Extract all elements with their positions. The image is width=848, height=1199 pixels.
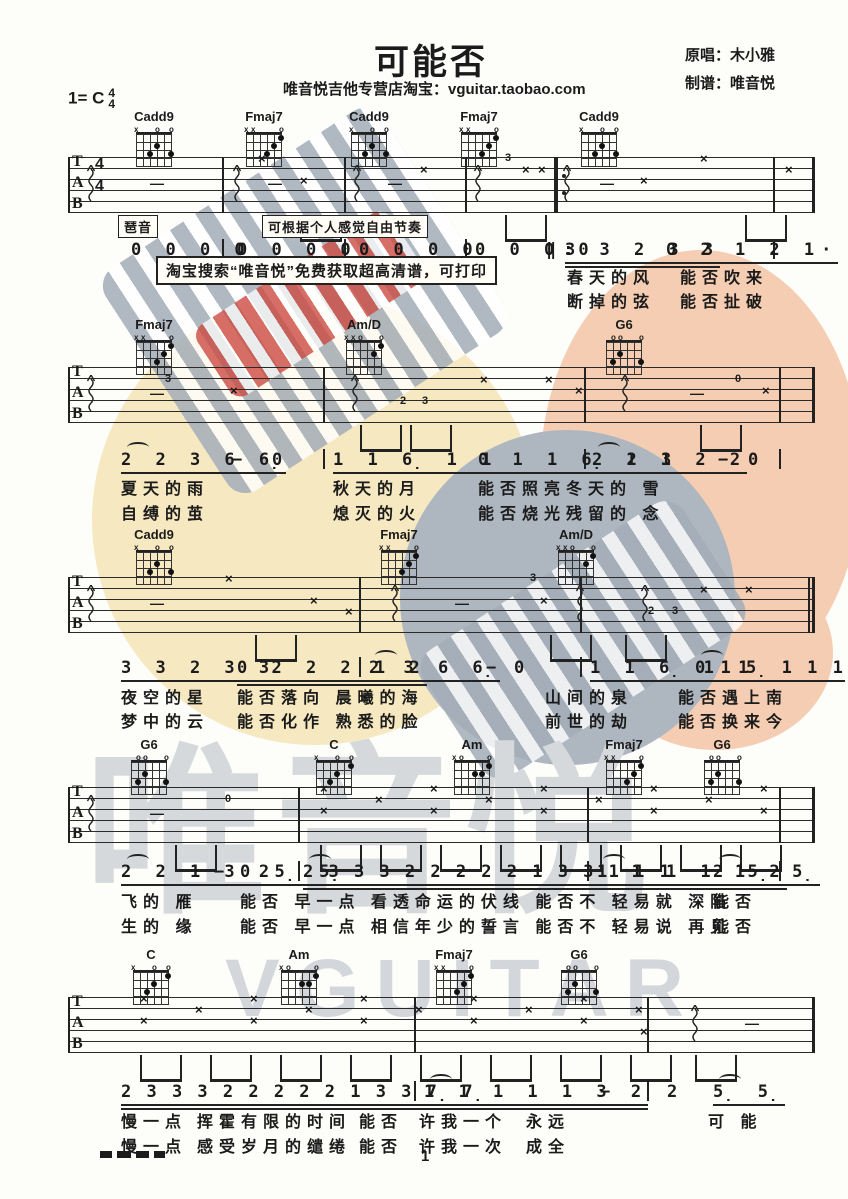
staff-barline (779, 367, 781, 423)
arpeggio-squiggle (350, 375, 360, 413)
staff-barline (808, 577, 810, 633)
strum-x-mark: × (320, 804, 328, 817)
chord-string-marker: o (169, 544, 174, 552)
chord-string-marker: x (579, 126, 583, 134)
chord-finger-dot (486, 143, 492, 149)
staff-time-sig-bottom: 4 (95, 178, 104, 196)
strum-x-mark: × (545, 373, 553, 386)
chord-diagram: G6ooo (125, 738, 173, 795)
chord-finger-dot (369, 143, 375, 149)
key-text: 1= C (68, 88, 104, 107)
chord-grid: xoo (581, 132, 617, 167)
strum-x-mark: × (195, 1003, 203, 1016)
chord-string-marker: o (414, 544, 419, 552)
lyric-segment-line1: 秋天的月 (333, 475, 421, 499)
chord-finger-dot (168, 151, 174, 157)
chord-finger-dot (624, 779, 630, 785)
chord-string-marker: x (563, 544, 567, 552)
chord-finger-dot (708, 779, 714, 785)
lyric-segment-line2: 能否 (713, 913, 757, 937)
rhythm-beam (550, 635, 592, 662)
slur-arc (701, 650, 723, 661)
strum-x-mark: × (415, 1003, 423, 1016)
staff-barline (465, 157, 467, 213)
fret-number: 3 (530, 573, 536, 584)
strum-x-mark: × (525, 1003, 533, 1016)
fret-number: 3 (672, 606, 678, 617)
chord-finger-dot (599, 143, 605, 149)
chord-finger-dot (313, 973, 319, 979)
chord-diagram: Fmaj7xxo (130, 318, 178, 375)
chord-diagram: Fmaj7xxo (600, 738, 648, 795)
chord-grid: ooo (561, 970, 597, 1005)
chord-diagram: G6ooo (698, 738, 746, 795)
chord-string-marker: x (279, 964, 283, 972)
tab-clef-letter: B (72, 195, 83, 213)
fret-number: 2 (400, 396, 406, 407)
chord-finger-dot (383, 151, 389, 157)
staff-barline (298, 787, 300, 843)
arpeggio-squiggle (390, 585, 400, 623)
chord-string-marker: o (600, 126, 605, 134)
chord-grid: xoo (136, 550, 172, 585)
chord-finger-dot (486, 763, 492, 769)
arpeggio-label: 琶音 (118, 215, 158, 238)
chord-string-marker: o (566, 964, 571, 972)
chord-finger-dot (151, 981, 157, 987)
sheet-music-page: 唯音悦 VGUITAR 可能否 原唱：木小雅 制谱：唯音悦 唯音悦吉他专营店淘宝… (0, 0, 848, 1199)
chord-finger-dot (154, 359, 160, 365)
strum-x-mark: × (345, 605, 353, 618)
chord-string-marker: o (155, 544, 160, 552)
strum-x-mark: × (375, 793, 383, 806)
chord-string-marker: x (314, 754, 318, 762)
lyric-segment-line2: 熄灭的火 (333, 500, 421, 524)
chord-string-marker: o (164, 754, 169, 762)
jianpu-group: 5̣ 5̣ (713, 1082, 785, 1106)
strum-x-mark: × (580, 1014, 588, 1027)
artifact-mark (117, 1151, 131, 1158)
strum-x-mark: × (310, 594, 318, 607)
jianpu-group: 1 1 6̣ 1 1 (333, 450, 498, 474)
chord-finger-dot (572, 981, 578, 987)
chord-string-marker: x (349, 126, 353, 134)
lyric-segment-line1: 能否遇上南 (678, 684, 788, 708)
staff-barline (587, 787, 589, 843)
chord-finger-dot (168, 569, 174, 575)
free-rhythm-label: 可根据个人感觉自由节奏 (262, 215, 428, 238)
strum-x-mark: × (760, 782, 768, 795)
lyric-segment-line2: 许我一次 (419, 1133, 507, 1157)
strum-x-mark: × (480, 373, 488, 386)
chord-name: Am (448, 738, 496, 752)
strum-x-mark: × (640, 1025, 648, 1038)
strum-x-mark: × (420, 163, 428, 176)
chord-string-marker: o (358, 334, 363, 342)
chord-string-marker: x (379, 544, 383, 552)
chord-string-marker: x (244, 126, 248, 134)
chord-finger-dot (278, 135, 284, 141)
chord-string-marker: o (639, 334, 644, 342)
lyric-segment-line2: 能否换来今 (678, 708, 788, 732)
chord-diagram: Fmaj7xxo (375, 528, 423, 585)
chord-name: C (127, 948, 175, 962)
chord-string-marker: o (494, 126, 499, 134)
chord-string-marker: o (136, 754, 141, 762)
chord-name: Am/D (552, 528, 600, 542)
chord-string-marker: x (556, 544, 560, 552)
chord-finger-dot (468, 973, 474, 979)
tab-clef-letter: T (72, 783, 83, 801)
chord-grid: xxo (136, 340, 172, 375)
chord-grid: xoo (281, 970, 317, 1005)
lyric-segment-line1: 许我一个 (419, 1108, 507, 1132)
chord-name: Fmaj7 (430, 948, 478, 962)
arpeggio-squiggle (575, 585, 585, 623)
chord-finger-dot (613, 151, 619, 157)
chord-finger-dot (593, 989, 599, 995)
lyric-segment-line1: 永远 (526, 1108, 570, 1132)
chord-string-marker: x (434, 964, 438, 972)
chord-string-marker: x (459, 126, 463, 134)
lyric-segment-line1: 能否 (713, 888, 757, 912)
chord-string-marker: x (134, 126, 138, 134)
arpeggio-squiggle (232, 165, 242, 203)
chord-name: Cadd9 (130, 528, 178, 542)
strum-x-mark: × (430, 782, 438, 795)
strum-x-mark: × (650, 804, 658, 817)
tab-clef-letter: B (72, 615, 83, 633)
artifact-mark (136, 1151, 149, 1158)
arpeggio-squiggle (473, 165, 483, 203)
slur-arc (598, 442, 620, 453)
chord-string-marker: x (351, 334, 355, 342)
lyric-segment-line2: 能否 (359, 1133, 403, 1157)
fret-number: 0 (225, 794, 231, 805)
lyric-segment-line2: 能否扯破 (680, 288, 768, 312)
staff-end-barline (812, 157, 815, 213)
chord-string-marker: x (452, 754, 456, 762)
chord-string-marker: o (169, 126, 174, 134)
staff-barline (323, 367, 325, 423)
lyric-segment-line1: 夜空的星 (121, 684, 209, 708)
lyric-segment-line2: 自缚的茧 (121, 500, 209, 524)
lyric-segment-line2: 断掉的弦 (567, 288, 655, 312)
staff-barline (68, 157, 70, 213)
staff-end-barline (812, 997, 815, 1053)
jianpu-group: − (600, 1082, 617, 1104)
chord-grid: ooo (606, 340, 642, 375)
chord-string-marker: o (379, 334, 384, 342)
strum-x-mark: × (700, 152, 708, 165)
rhythm-beam (745, 215, 787, 242)
arpeggio-squiggle (620, 375, 630, 413)
strum-x-mark: × (595, 793, 603, 806)
chord-string-marker: x (251, 126, 255, 134)
chord-string-marker: o (459, 754, 464, 762)
strum-x-mark: × (140, 1014, 148, 1027)
jianpu-group: 0 (272, 450, 289, 472)
lyric-segment-line1: 挥霍有限的时间 (197, 1108, 351, 1132)
chord-name: Fmaj7 (600, 738, 648, 752)
chord-diagram: Amxoo (448, 738, 496, 795)
chord-string-marker: o (591, 544, 596, 552)
lyric-segment-line1: 能否吹来 (680, 264, 768, 288)
chord-finger-dot (493, 135, 499, 141)
chord-name: G6 (555, 948, 603, 962)
chord-diagram: G6ooo (555, 948, 603, 1005)
chord-name: Fmaj7 (455, 110, 503, 124)
chord-finger-dot (406, 561, 412, 567)
chord-string-marker: o (487, 754, 492, 762)
chord-finger-dot (154, 561, 160, 567)
chord-grid: xxoo (558, 550, 594, 585)
clipped-print-artifact (100, 1151, 170, 1169)
rest-dash: — (455, 596, 469, 610)
slur-arc (127, 854, 149, 865)
tab-clef-letter: T (72, 363, 83, 381)
chord-finger-dot (135, 779, 141, 785)
strum-x-mark: × (430, 804, 438, 817)
arpeggio-squiggle (86, 165, 96, 203)
chord-string-marker: o (143, 754, 148, 762)
credit-original-singer: 原唱：木小雅 (685, 44, 775, 65)
tab-clef-letter: T (72, 153, 83, 171)
credit-arranger: 制谱：唯音悦 (685, 72, 775, 93)
fret-number: 0 (735, 374, 741, 385)
jianpu-group: 2 2 3 6 6̣ (121, 450, 286, 474)
chord-string-marker: o (370, 126, 375, 134)
chord-grid: xoo (136, 132, 172, 167)
arpeggio-squiggle (86, 585, 96, 623)
chord-diagram: Cadd9xoo (130, 110, 178, 167)
jianpu-group: 0 1 5̣ 1 1 1 (695, 658, 845, 682)
chord-finger-dot (583, 561, 589, 567)
number-row-barline (779, 449, 781, 469)
tab-clef-letter: A (72, 804, 84, 822)
chord-string-marker: o (155, 126, 160, 134)
slur-arc (719, 854, 741, 865)
tab-clef-letter: A (72, 174, 84, 192)
chord-diagram: Am/Dxxoo (340, 318, 388, 375)
tab-clef-letter: B (72, 825, 83, 843)
strum-x-mark: × (540, 594, 548, 607)
chord-string-marker: x (611, 754, 615, 762)
store-subtitle: 唯音悦吉他专营店淘宝：vguitar.taobao.com (283, 78, 586, 99)
strum-x-mark: × (250, 1014, 258, 1027)
strum-x-mark: × (762, 384, 770, 397)
chord-diagram: G6ooo (600, 318, 648, 375)
chord-string-marker: x (441, 964, 445, 972)
strum-x-mark: × (250, 992, 258, 1005)
chord-finger-dot (592, 151, 598, 157)
chord-finger-dot (147, 151, 153, 157)
chord-string-marker: x (134, 544, 138, 552)
rhythm-beam (560, 1055, 602, 1082)
tab-clef-letter: T (72, 993, 83, 1011)
jianpu-group: 0 (748, 450, 765, 472)
chord-diagram: Cxoo (310, 738, 358, 795)
chord-string-marker: o (349, 754, 354, 762)
rhythm-beam (490, 1055, 532, 1082)
chord-finger-dot (147, 569, 153, 575)
artifact-mark (100, 1151, 112, 1158)
chord-finger-dot (362, 151, 368, 157)
rhythm-beam (210, 1055, 252, 1082)
chord-diagram: Amxoo (275, 948, 323, 1005)
strum-x-mark: × (360, 992, 368, 1005)
chord-finger-dot (454, 989, 460, 995)
chord-finger-dot (590, 553, 596, 559)
slur-arc (375, 650, 397, 661)
chord-diagram: Cadd9xoo (575, 110, 623, 167)
slur-arc (603, 854, 625, 865)
taobao-promo-banner: 淘宝搜索“唯音悦”免费获取超高清谱，可打印 (156, 256, 497, 285)
staff-barline (68, 577, 70, 633)
staff-time-sig-top: 4 (95, 156, 104, 174)
strum-x-mark: × (705, 793, 713, 806)
strum-x-mark: × (760, 804, 768, 817)
chord-finger-dot (610, 359, 616, 365)
arpeggio-squiggle (690, 1005, 700, 1043)
lyric-segment-line2: 生的 缘 (121, 913, 197, 937)
strum-x-mark: × (650, 782, 658, 795)
chord-grid: xoo (454, 760, 490, 795)
arpeggio-squiggle (352, 165, 362, 203)
chord-string-marker: o (614, 126, 619, 134)
strum-x-mark: × (225, 572, 233, 585)
chord-string-marker: o (709, 754, 714, 762)
chord-name: G6 (125, 738, 173, 752)
rhythm-beam (410, 425, 452, 452)
chord-finger-dot (271, 143, 277, 149)
strum-x-mark: × (540, 804, 548, 817)
chord-finger-dot (479, 151, 485, 157)
lyric-segment-line2: 梦中的云 (121, 708, 209, 732)
chord-string-marker: o (469, 964, 474, 972)
chord-finger-dot (715, 771, 721, 777)
chord-finger-dot (461, 981, 467, 987)
chord-grid: xxo (606, 760, 642, 795)
chord-diagram: Cadd9xoo (345, 110, 393, 167)
fret-number: 3 (505, 153, 511, 164)
chord-string-marker: o (594, 964, 599, 972)
arpeggio-squiggle (86, 375, 96, 413)
strum-x-mark: × (258, 152, 266, 165)
rest-dash: — (268, 176, 282, 190)
lyric-segment-line1: 慢一点 (121, 1108, 187, 1132)
rest-dash: — (150, 176, 164, 190)
chord-string-marker: o (618, 334, 623, 342)
chord-string-marker: o (611, 334, 616, 342)
tab-clef-letter: A (72, 1014, 84, 1032)
lyric-segment-line2: 感受岁月的缱绻 (197, 1133, 351, 1157)
tab-clef-letter: A (72, 594, 84, 612)
chord-grid: xxo (381, 550, 417, 585)
lyric-segment-line1: 飞的 雁 (121, 888, 197, 912)
lyric-segment-line1: 可 能 (708, 1108, 762, 1132)
repeat-barline (554, 157, 558, 213)
jianpu-group: 2 5̣ 5̣ (713, 862, 820, 886)
strum-x-mark: × (485, 793, 493, 806)
chord-string-marker: x (604, 754, 608, 762)
staff-barline (68, 367, 70, 423)
chord-name: Am (275, 948, 323, 962)
jianpu-group: 0 2 1 2 1· (666, 240, 838, 264)
strum-x-mark: × (305, 1003, 313, 1016)
chord-string-marker: x (134, 334, 138, 342)
tab-staff (68, 997, 814, 1053)
lyric-segment-line1: 春天的风 (567, 264, 655, 288)
arpeggio-squiggle (640, 585, 650, 623)
staff-end-barline (812, 577, 815, 633)
chord-name: Cadd9 (575, 110, 623, 124)
slur-arc (127, 442, 149, 453)
chord-name: Fmaj7 (240, 110, 288, 124)
rhythm-beam (280, 1055, 322, 1082)
chord-string-marker: o (169, 334, 174, 342)
chord-name: Fmaj7 (130, 318, 178, 332)
fret-number: 3 (422, 396, 428, 407)
chord-name: G6 (698, 738, 746, 752)
chord-string-marker: o (570, 544, 575, 552)
chord-finger-dot (334, 771, 340, 777)
chord-diagram: Fmaj7xxo (455, 110, 503, 167)
strum-x-mark: × (140, 992, 148, 1005)
chord-string-marker: x (141, 334, 145, 342)
chord-finger-dot (617, 351, 623, 357)
arpeggio-squiggle (562, 165, 572, 203)
chord-string-marker: x (131, 964, 135, 972)
lyric-segment-line1: 能否 早一点 看透命运的伏线 能否不 轻易就 深陷 (240, 888, 732, 912)
chord-finger-dot (638, 763, 644, 769)
slur-arc (719, 1074, 741, 1085)
rest-dash: — (150, 806, 164, 820)
chord-finger-dot (565, 989, 571, 995)
strum-x-mark: × (320, 782, 328, 795)
chord-grid: xoo (351, 132, 387, 167)
rest-dash: — (388, 176, 402, 190)
slur-arc (430, 1074, 452, 1085)
lyric-segment-line2: 能否化作 熟悉的脸 (237, 708, 423, 732)
staff-barline (359, 577, 361, 633)
number-row-barline (323, 449, 325, 469)
lyric-segment-line2: 能否烧光残留的 念 (478, 500, 664, 524)
strum-x-mark: × (745, 583, 753, 596)
strum-x-mark: × (538, 163, 546, 176)
chord-name: Cadd9 (345, 110, 393, 124)
chord-finger-dot (413, 553, 419, 559)
chord-string-marker: o (384, 126, 389, 134)
fret-number: 3 (165, 374, 171, 385)
chord-string-marker: o (314, 964, 319, 972)
artifact-mark (154, 1151, 165, 1158)
number-row-barline (580, 657, 582, 677)
chord-string-marker: o (639, 754, 644, 762)
chord-name: C (310, 738, 358, 752)
chord-name: Fmaj7 (375, 528, 423, 542)
jianpu-group: − (718, 450, 735, 472)
lyric-segment-line2: 成全 (526, 1133, 570, 1157)
chord-diagram: Cadd9xoo (130, 528, 178, 585)
strum-x-mark: × (580, 992, 588, 1005)
chord-string-marker: x (344, 334, 348, 342)
rest-dash: — (600, 176, 614, 190)
rest-dash: — (745, 1016, 759, 1030)
chord-diagram: Cxoo (127, 948, 175, 1005)
chord-finger-dot (165, 973, 171, 979)
chord-name: Am/D (340, 318, 388, 332)
